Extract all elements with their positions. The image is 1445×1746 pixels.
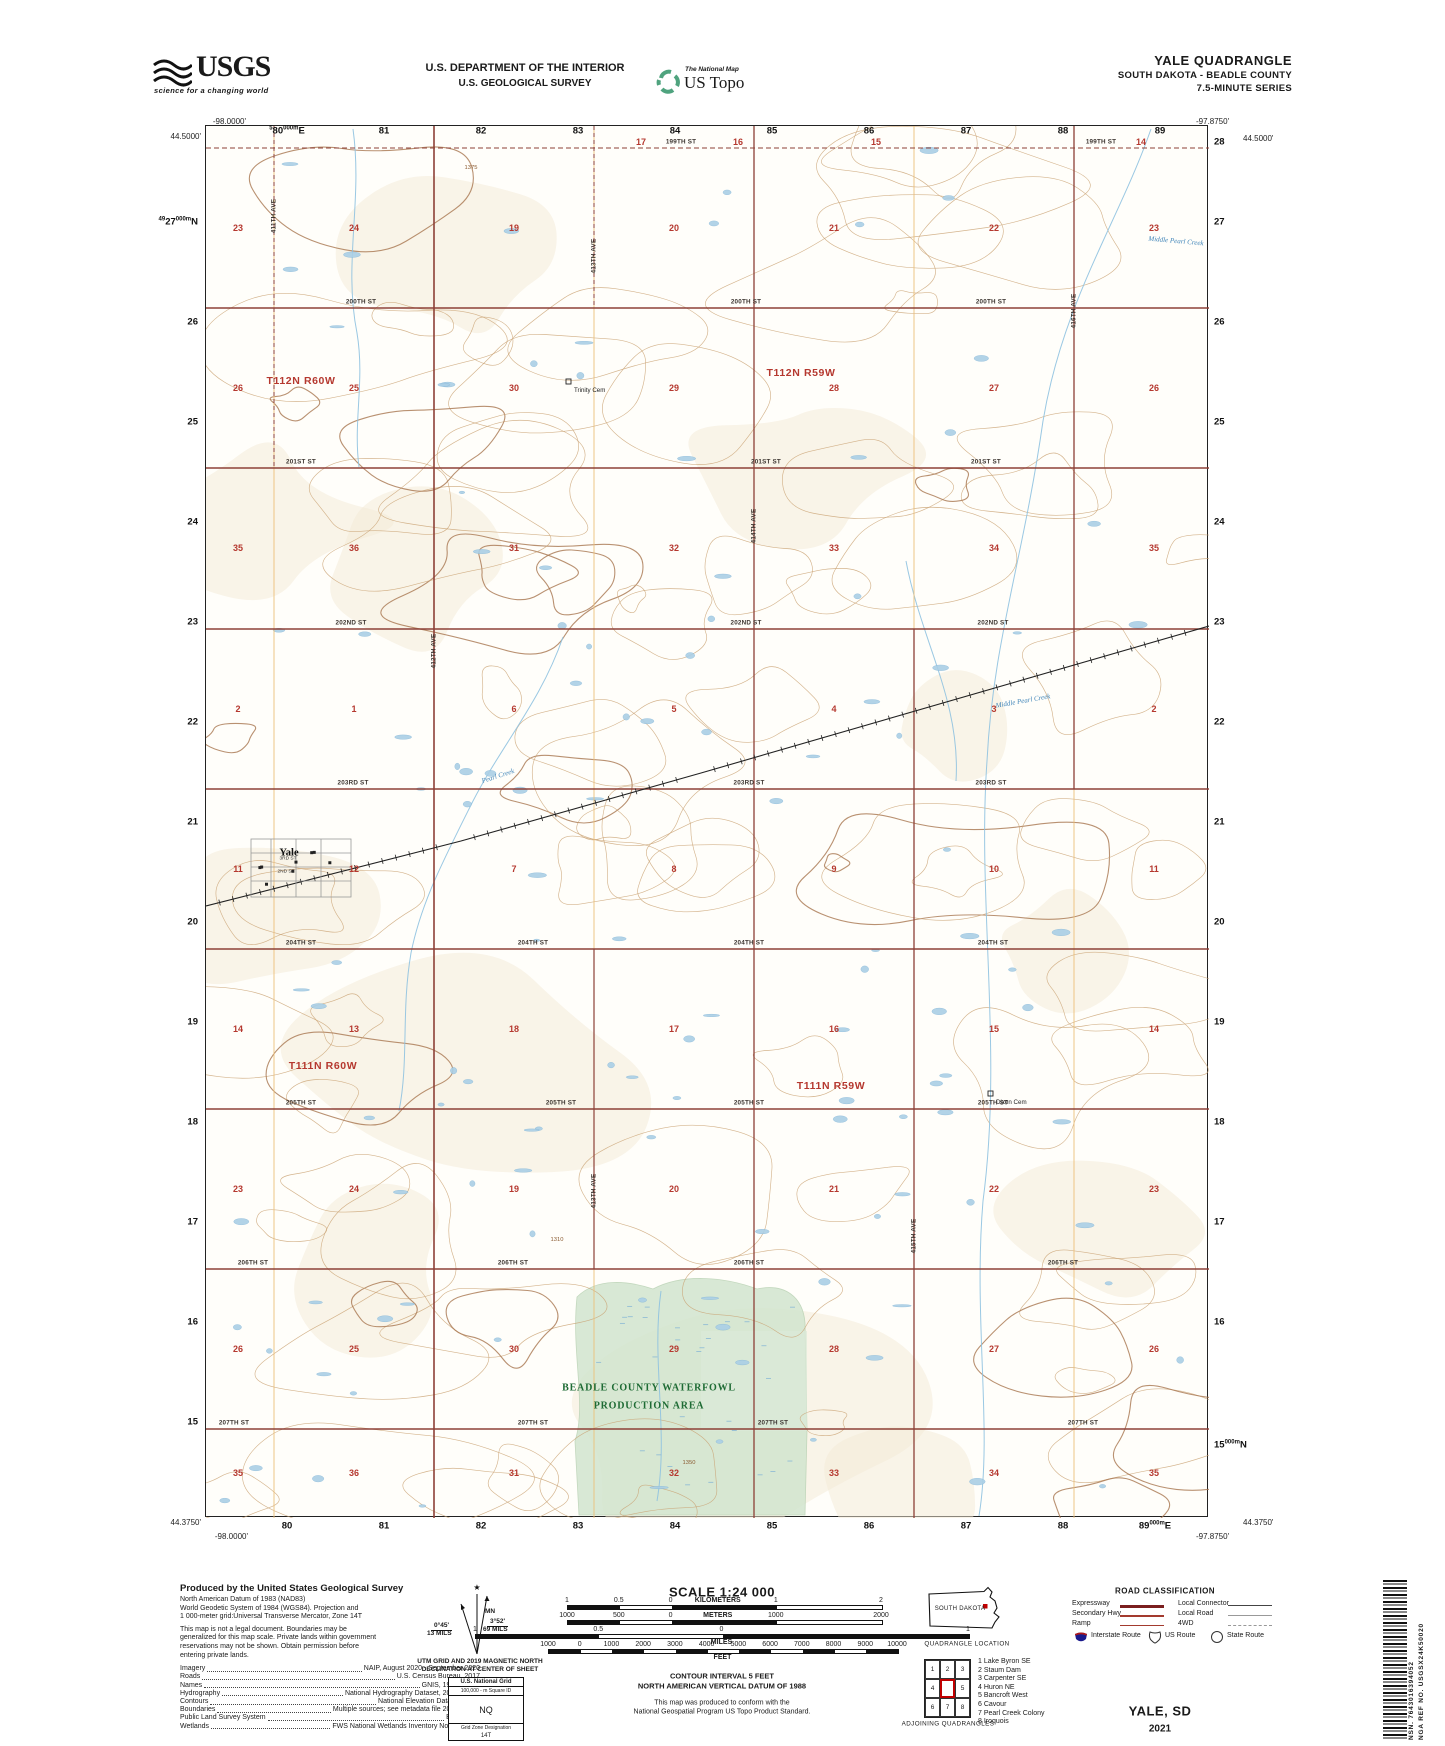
cemetery-label: Trinity Cem [574,387,605,394]
section-number: 23 [1149,1184,1159,1194]
section-number: 1 [351,704,356,714]
avenue-label: 413TH AVE [591,239,598,274]
usgs-logo: USGS science for a changing world [152,55,352,103]
road-label: 205TH ST [286,1100,316,1107]
utm-grid-label-left: 15 [187,1417,198,1428]
avenue-label: 412TH AVE [431,634,438,669]
declination-caption-2: DECLINATION AT CENTER OF SHEET [400,1666,560,1674]
dot-leader [202,1679,394,1680]
natgrid-zone-label: Grid Zone Designation [449,1723,523,1732]
section-number: 24 [349,1184,359,1194]
map-labels-layer: 2324192021222326253029282726353631323334… [206,126,1207,1516]
utm-grid-label-left: 25 [187,417,198,428]
utm-grid-label-bottom: 89000mE [1139,1520,1171,1531]
scale-tick-label: 10000 [887,1641,906,1648]
quad-subtitle: SOUTH DAKOTA - BEADLE COUNTY [992,70,1292,81]
road-classification-title: ROAD CLASSIFICATION [1115,1587,1215,1596]
section-number: 33 [829,543,839,553]
scale-tick-label: 1 [565,1597,569,1604]
utm-grid-label-right: 28 [1214,137,1225,148]
scale-tick-label: 500 [613,1612,625,1619]
township-label: T112N R59W [766,367,835,379]
section-number: 19 [509,1184,519,1194]
section-number: 23 [233,1184,243,1194]
section-number: 11 [233,864,243,874]
road-class-swatch-expressway [1120,1605,1164,1608]
road-label: 204TH ST [734,940,764,947]
usgs-tagline: science for a changing world [154,86,269,95]
quad-series: 7.5-MINUTE SERIES [992,83,1292,94]
utm-grid-label-right: 15000mN [1214,1439,1247,1450]
scale-bar-segment [672,1621,777,1624]
source-term: Roads [180,1673,200,1681]
source-term: Hydrography [180,1690,220,1698]
adjoining-quad-name: 7 Pearl Creek Colony [978,1710,1045,1719]
source-term: Boundaries [180,1706,215,1714]
section-number: 15 [871,137,881,147]
utm-grid-label-bottom: 82 [476,1521,487,1532]
section-number: 23 [1149,223,1159,233]
road-label: 203RD ST [338,780,369,787]
adjoining-caption: ADJOINING QUADRANGLES [902,1721,995,1728]
utm-grid-label-right: 21 [1214,817,1225,828]
scale-bar [567,1620,883,1625]
source-term: Wetlands [180,1723,209,1731]
section-number: 26 [1149,383,1159,393]
utm-grid-label-bottom: 87 [961,1521,972,1532]
scale-tick-label: 0 [669,1597,673,1604]
source-row: WetlandsFWS National Wetlands Inventory … [180,1723,480,1731]
road-label: 204TH ST [978,940,1008,947]
section-number: 18 [509,1024,519,1034]
road-class-label: Ramp [1072,1620,1091,1627]
scale-bar-segment [568,1606,620,1609]
scale-tick-label: 0 [720,1626,724,1633]
scale-tick-label: 5000 [731,1641,747,1648]
road-class-swatch-secondary [1120,1615,1164,1617]
source-row: RoadsU.S. Census Bureau, 2017 [180,1673,480,1681]
scale-tick-label: 2000 [635,1641,651,1648]
section-number: 25 [349,1344,359,1354]
section-number: 12 [349,864,359,874]
township-label: T112N R60W [266,375,335,387]
section-number: 10 [989,864,999,874]
corner-coordinate: 44.5000' [171,132,201,141]
scale-unit-label: METERS [703,1612,732,1619]
section-number: 22 [989,223,999,233]
dot-leader [207,1671,361,1672]
declination-caption-1: UTM GRID AND 2019 MAGNETIC NORTH [400,1658,560,1666]
road-class-label: 4WD [1178,1620,1194,1627]
topo-sheet: USGS science for a changing world U.S. D… [0,0,1445,1746]
natgrid-square-id: NQ [449,1696,523,1723]
road-label: 204TH ST [518,940,548,947]
section-number: 21 [829,223,839,233]
adjoining-quad-name: 2 Staum Dam [978,1667,1045,1676]
adjoining-center-cell [940,1679,955,1698]
section-number: 6 [511,704,516,714]
section-number: 8 [671,864,676,874]
section-number: 34 [989,543,999,553]
agency-line-1: U.S. DEPARTMENT OF THE INTERIOR [375,62,675,74]
section-number: 32 [669,543,679,553]
agency-line-2: U.S. GEOLOGICAL SURVEY [375,78,675,89]
avenue-label: 416TH AVE [1071,294,1078,329]
ustopo-small-label: The National Map [685,66,739,73]
adjoining-quad-name: 1 Lake Byron SE [978,1658,1045,1667]
section-number: 36 [349,1468,359,1478]
source-row: ContoursNational Elevation Dataset, 2014 [180,1698,480,1706]
township-label: T111N R60W [289,1060,357,1072]
road-class-swatch-local [1228,1615,1272,1616]
contour-interval-note: CONTOUR INTERVAL 5 FEET [670,1672,774,1681]
scale-bar-segment [676,1650,708,1653]
section-number: 23 [233,223,243,233]
section-number: 29 [669,1344,679,1354]
utm-grid-label-left: 18 [187,1117,198,1128]
utm-grid-label-bottom: 88 [1058,1521,1069,1532]
route-shield-label: Interstate Route [1091,1632,1141,1639]
dot-leader [217,1712,330,1713]
ustopo-logo: The National Map US Topo [655,62,785,102]
scale-tick-label: 0 [578,1641,582,1648]
road-label: 202ND ST [978,620,1009,627]
avenue-label: 411TH AVE [271,199,278,233]
scale-tick-label: 1 [473,1626,477,1633]
section-number: 26 [1149,1344,1159,1354]
section-number: 34 [989,1468,999,1478]
conform-note-1: This map was produced to conform with th… [654,1700,789,1707]
scale-tick-label: 0.5 [593,1626,603,1633]
cemetery-label: Dixon Cem [996,1099,1027,1106]
utm-grid-label-bottom: 83 [573,1521,584,1532]
road-label: 205TH ST [546,1100,576,1107]
adjoining-quad-name: 5 Bancroft West [978,1692,1045,1701]
section-number: 7 [511,864,516,874]
section-number: 19 [509,223,519,233]
scale-tick-label: 1000 [540,1641,556,1648]
utm-grid-label-right: 20 [1214,917,1225,928]
source-row: Public Land Survey SystemBLM, 2017 [180,1714,480,1722]
scale-tick-label: 7000 [794,1641,810,1648]
road-label: 200TH ST [731,299,761,306]
adjoining-cell: 8 [955,1698,970,1717]
scale-bar-segment [866,1650,898,1653]
section-number: 2 [235,704,240,714]
scale-tick-label: 1000 [559,1612,575,1619]
road-class-swatch-ramp [1120,1625,1164,1626]
contour-elevation-label: 1375 [465,165,478,171]
utm-grid-label-left: 16 [187,1317,198,1328]
scale-bar-segment [549,1650,581,1653]
scale-tick-label: 1000 [768,1612,784,1619]
section-number: 22 [989,1184,999,1194]
quad-title: YALE QUADRANGLE [992,53,1292,68]
township-label: T111N R59W [797,1080,865,1092]
adjoining-cell: 4 [925,1679,940,1698]
barcode [1383,1580,1407,1740]
declination-arrows-icon: ★ [425,1580,535,1660]
scale-tick-label: 6000 [762,1641,778,1648]
utm-grid-label-left: 4927000mN [159,216,199,227]
section-number: 35 [1149,1468,1159,1478]
section-number: 35 [1149,543,1159,553]
scale-bar-segment [672,1606,777,1609]
utm-grid-label-bottom: 81 [379,1521,390,1532]
mn-mils: 69 MILS [483,1626,508,1634]
section-number: 28 [829,383,839,393]
section-number: 13 [349,1024,359,1034]
section-number: 30 [509,1344,519,1354]
adjoining-quad-name: 4 Huron NE [978,1684,1045,1693]
road-label: 206TH ST [498,1260,528,1267]
adjoining-grid: 12345678 [924,1659,971,1718]
road-label: 204TH ST [286,940,316,947]
scale-tick-label: 2 [879,1597,883,1604]
section-number: 17 [669,1024,679,1034]
adjoining-cell: 2 [940,1660,955,1679]
utm-grid-label-left: 19 [187,1017,198,1028]
state-locator: SOUTH DAKOTA [926,1585,1008,1635]
route-shield-label: US Route [1165,1632,1195,1639]
section-number: 26 [233,383,243,393]
contour-elevation-label: 1310 [551,1237,564,1243]
gn-mils: 13 MILS [427,1630,452,1638]
section-number: 20 [669,1184,679,1194]
corner-coordinate: -97.8750' [1196,1532,1229,1541]
utm-grid-label-bottom: 86 [864,1521,875,1532]
stream-label: Pearl Creek [481,767,516,785]
road-class-label: Secondary Hwy [1072,1610,1121,1617]
corner-coordinate: -98.0000' [215,1532,248,1541]
section-number: 35 [233,543,243,553]
road-label: 207TH ST [758,1420,788,1427]
road-label: 201ST ST [751,459,781,466]
contour-elevation-label: 1350 [683,1460,696,1466]
corner-coordinate: 44.3750' [171,1518,201,1527]
section-number: 36 [349,543,359,553]
scale-bar-segment [803,1650,835,1653]
road-label: 201ST ST [286,459,316,466]
scale-unit-label: FEET [714,1654,732,1661]
section-number: 27 [989,1344,999,1354]
map-area: 2324192021222326253029282726353631323334… [205,125,1208,1517]
section-number: 26 [233,1344,243,1354]
road-label: 199TH ST [666,139,696,146]
section-number: 14 [1136,137,1146,147]
waterfowl-area-label: PRODUCTION AREA [594,1401,705,1412]
road-class-label: Local Connector [1178,1600,1229,1607]
road-label: 206TH ST [1048,1260,1078,1267]
road-class-label: Expressway [1072,1600,1110,1607]
avenue-label: 414TH AVE [751,509,758,544]
section-number: 29 [669,383,679,393]
utm-grid-label-right: 27 [1214,217,1225,228]
section-number: 28 [829,1344,839,1354]
nsn-number: NSN. 7643016394052 [1408,1580,1415,1740]
section-number: 32 [669,1468,679,1478]
section-number: 11 [1149,864,1159,874]
natgrid-square-label: 100,000 - m Square ID [449,1687,523,1696]
road-label: 202ND ST [336,620,367,627]
road-label: 206TH ST [734,1260,764,1267]
stream-label: Middle Pearl Creek [1148,235,1204,248]
adjoining-cell: 1 [925,1660,940,1679]
source-row: NamesGNIS, 1980 - 2020 [180,1682,480,1690]
road-label: 206TH ST [238,1260,268,1267]
scale-bar-segment [739,1650,771,1653]
section-number: 9 [831,864,836,874]
waterfowl-area-label: BEADLE COUNTY WATERFOWL [562,1383,736,1394]
section-number: 27 [989,383,999,393]
adjoining-cell: 5 [955,1679,970,1698]
quadrangle-location-caption: QUADRANGLE LOCATION [924,1641,1009,1648]
map-name: YALE, SD [1129,1704,1192,1719]
declination-caption: UTM GRID AND 2019 MAGNETIC NORTH DECLINA… [400,1658,560,1673]
national-map-icon [655,68,681,94]
utm-grid-label-right: 26 [1214,317,1225,328]
scale-bar-segment [476,1635,599,1638]
scale-tick-label: 8000 [826,1641,842,1648]
utm-grid-label-right: 25 [1214,417,1225,428]
utm-grid-label-bottom: 85 [767,1521,778,1532]
scale-tick-label: 3000 [667,1641,683,1648]
section-number: 4 [831,704,836,714]
dot-leader [204,1687,419,1688]
section-number: 31 [509,1468,519,1478]
road-label: 202ND ST [731,620,762,627]
scale-tick-label: 0 [669,1612,673,1619]
utm-grid-label-left: 22 [187,717,198,728]
utm-grid-label-right: 17 [1214,1217,1225,1228]
scale-tick-label: 9000 [857,1641,873,1648]
road-label: 200TH ST [976,299,1006,306]
utm-grid-label-left: 24 [187,517,198,528]
source-row: BoundariesMultiple sources; see metadata… [180,1706,480,1714]
conform-note-2: National Geospatial Program US Topo Prod… [634,1709,811,1716]
utm-grid-label-right: 19 [1214,1017,1225,1028]
utm-grid-label-bottom: 80 [282,1521,293,1532]
avenue-label: 413TH AVE [591,1174,598,1209]
road-label: 203RD ST [734,780,765,787]
dot-leader [268,1720,445,1721]
section-number: 14 [233,1024,243,1034]
dot-leader [211,1728,330,1729]
natgrid-title: U.S. National Grid [449,1678,523,1687]
road-label: 207TH ST [518,1420,548,1427]
section-number: 25 [349,383,359,393]
mn-label: MN [485,1608,495,1616]
adjoining-names: 1 Lake Byron SE2 Staum Dam3 Carpenter SE… [978,1658,1045,1727]
utm-grid-label-bottom: 84 [670,1521,681,1532]
section-number: 30 [509,383,519,393]
usgs-wordmark: USGS [196,50,270,84]
source-term: Contours [180,1698,208,1706]
scale-bar-segment [723,1635,970,1638]
road-label: 200TH ST [346,299,376,306]
dot-leader [222,1695,343,1696]
section-number: 33 [829,1468,839,1478]
scale-bar-segment [568,1621,620,1624]
adjoining-quad-name: 6 Cavour [978,1701,1045,1710]
route-shield-state-icon [1210,1630,1224,1644]
svg-text:★: ★ [473,1583,480,1592]
utm-grid-label-right: 23 [1214,617,1225,628]
section-number: 31 [509,543,519,553]
corner-coordinate: 44.3750' [1243,1518,1273,1527]
road-label: 207TH ST [1068,1420,1098,1427]
utm-grid-label-left: 26 [187,317,198,328]
scale-bar [567,1605,883,1610]
source-term: Public Land Survey System [180,1714,266,1722]
utm-grid-label-right: 18 [1214,1117,1225,1128]
adjoining-cell: 3 [955,1660,970,1679]
road-label: 199TH ST [1086,139,1116,146]
section-number: 35 [233,1468,243,1478]
section-number: 14 [1149,1024,1159,1034]
road-label: 207TH ST [219,1420,249,1427]
scale-tick-label: 4000 [699,1641,715,1648]
section-number: 15 [989,1024,999,1034]
section-number: 5 [671,704,676,714]
scale-tick-label: 2000 [873,1612,889,1619]
route-shield-interstate-icon [1074,1630,1088,1644]
source-term: Imagery [180,1665,205,1673]
utm-grid-label-right: 22 [1214,717,1225,728]
state-name: SOUTH DAKOTA [935,1606,986,1612]
avenue-label: 415TH AVE [911,1219,918,1254]
road-class-swatch-fourwd [1228,1625,1272,1626]
source-term: Names [180,1682,202,1690]
section-number: 21 [829,1184,839,1194]
route-shield-us-icon [1148,1630,1162,1644]
nga-ref-number: NGA REF NO. USGSX24K50020 [1418,1580,1425,1740]
natgrid-zone: 14T [449,1732,523,1740]
corner-coordinate: 44.5000' [1243,134,1273,143]
ustopo-big-label: US Topo [684,73,744,93]
section-number: 24 [349,223,359,233]
section-number: 16 [829,1024,839,1034]
adjoining-cell: 6 [925,1698,940,1717]
stream-label: Middle Pearl Creek [995,692,1051,709]
road-label: 201ST ST [971,459,1001,466]
adjoining-quad-name: 3 Carpenter SE [978,1675,1045,1684]
utm-grid-label-right: 24 [1214,517,1225,528]
scale-unit-label: KILOMETERS [695,1597,741,1604]
utm-grid-label-left: 21 [187,817,198,828]
utm-grid-label-right: 16 [1214,1317,1225,1328]
scale-tick-label: 0.5 [614,1597,624,1604]
declination-diagram: ★ MN 3°52' 69 MILS 0°45' 13 MILS [425,1580,535,1660]
section-number: 2 [1151,704,1156,714]
section-number: 16 [733,137,743,147]
town-street-label: 2ND ST [277,870,294,875]
route-shield-label: State Route [1227,1632,1264,1639]
road-class-label: Local Road [1178,1610,1213,1617]
vertical-datum-note: NORTH AMERICAN VERTICAL DATUM OF 1988 [638,1682,806,1691]
scale-bar-segment [612,1650,644,1653]
road-class-swatch-connector [1228,1605,1272,1606]
utm-grid-label-left: 23 [187,617,198,628]
road-label: 203RD ST [976,780,1007,787]
dot-leader [210,1704,376,1705]
adjoining-cell: 7 [940,1698,955,1717]
national-grid-box: U.S. National Grid 100,000 - m Square ID… [448,1677,524,1741]
section-number: 20 [669,223,679,233]
utm-grid-label-left: 20 [187,917,198,928]
scale-tick-label: 1 [774,1597,778,1604]
town-street-label: 3RD ST [279,857,296,862]
